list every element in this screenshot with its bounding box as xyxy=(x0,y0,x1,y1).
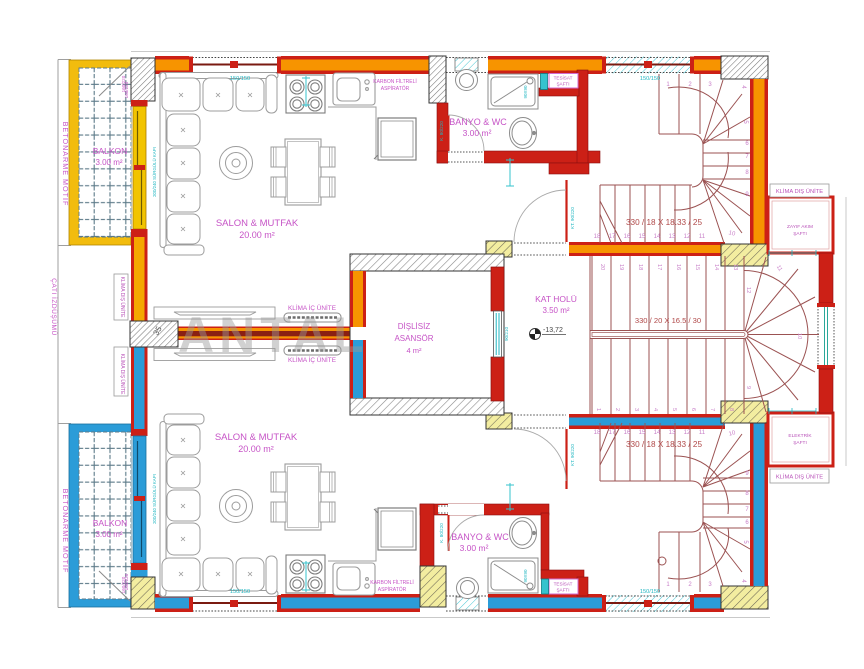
svg-text:TESİSAT: TESİSAT xyxy=(554,75,573,81)
svg-text:ASPİRATÖR: ASPİRATÖR xyxy=(381,85,410,92)
svg-text:19: 19 xyxy=(618,264,624,270)
svg-text:13: 13 xyxy=(669,430,676,436)
svg-text:12: 12 xyxy=(684,234,691,240)
svg-text:150/150: 150/150 xyxy=(640,589,660,595)
svg-text:KLİMA İÇ ÜNİTE: KLİMA İÇ ÜNİTE xyxy=(288,303,336,312)
svg-text:3.00 m²: 3.00 m² xyxy=(463,128,492,138)
svg-text:BANYO & WC: BANYO & WC xyxy=(449,117,507,127)
svg-text:BETONARME MOTİF: BETONARME MOTİF xyxy=(61,122,70,207)
svg-text:200/240 SÜRGÜLÜ KAPI: 200/240 SÜRGÜLÜ KAPI xyxy=(152,147,157,197)
svg-text:12: 12 xyxy=(745,287,751,293)
svg-text:10: 10 xyxy=(796,333,802,339)
svg-text:15: 15 xyxy=(694,264,700,270)
svg-text:6: 6 xyxy=(690,408,696,411)
svg-text:20: 20 xyxy=(599,264,605,270)
svg-text:KAT HOLÜ: KAT HOLÜ xyxy=(535,294,577,304)
svg-text:160/220: 160/220 xyxy=(124,81,129,98)
svg-text:2: 2 xyxy=(614,408,620,411)
svg-text:18: 18 xyxy=(637,264,643,270)
svg-text:3.50 m²: 3.50 m² xyxy=(542,306,569,315)
svg-text:14: 14 xyxy=(713,264,719,270)
svg-text:18: 18 xyxy=(594,234,601,240)
svg-text:90X90: 90X90 xyxy=(523,85,528,99)
svg-text:4: 4 xyxy=(652,408,658,411)
svg-text:ŞAFTI: ŞAFTI xyxy=(793,231,807,237)
svg-text:BALKON: BALKON xyxy=(93,146,128,156)
svg-text:ŞAFTI: ŞAFTI xyxy=(556,82,569,87)
svg-text:ŞAFTI: ŞAFTI xyxy=(793,440,807,446)
svg-text:TESİSAT: TESİSAT xyxy=(554,581,573,587)
svg-text:15: 15 xyxy=(639,430,646,436)
svg-text:20.00 m²: 20.00 m² xyxy=(239,230,275,240)
svg-text:12: 12 xyxy=(684,430,691,436)
svg-text:SALON & MUTFAK: SALON & MUTFAK xyxy=(216,218,299,229)
svg-text:330 / 18 X 18.33 / 25: 330 / 18 X 18.33 / 25 xyxy=(626,218,702,227)
svg-text:5: 5 xyxy=(671,408,677,411)
svg-text:KARBON FİLTRELİ: KARBON FİLTRELİ xyxy=(373,78,417,85)
svg-text:11: 11 xyxy=(699,234,706,240)
svg-text:20.00 m²: 20.00 m² xyxy=(238,444,274,454)
svg-text:3: 3 xyxy=(633,408,639,411)
svg-text:BETONARME MOTİF: BETONARME MOTİF xyxy=(61,489,70,574)
svg-text:200/240 SÜRGÜLÜ KAPI: 200/240 SÜRGÜLÜ KAPI xyxy=(152,474,157,524)
svg-text:BALKON: BALKON xyxy=(93,518,128,528)
svg-text:KLİMA DIŞ ÜNİTE: KLİMA DIŞ ÜNİTE xyxy=(119,277,126,319)
svg-text:K. 80/220: K. 80/220 xyxy=(439,523,444,543)
svg-text:ELEKTRİK: ELEKTRİK xyxy=(788,432,812,439)
svg-text:ANTAL: ANTAL xyxy=(178,307,369,363)
svg-text:1: 1 xyxy=(595,408,601,411)
svg-text:ŞAFTI: ŞAFTI xyxy=(556,588,569,593)
svg-text:KT. 90/220: KT. 90/220 xyxy=(570,444,575,466)
svg-text:90/210: 90/210 xyxy=(504,327,509,341)
svg-text:KLİMA DIŞ ÜNİTE: KLİMA DIŞ ÜNİTE xyxy=(776,188,823,195)
svg-text:K. 80/220: K. 80/220 xyxy=(439,121,444,141)
svg-text:ÇATI İZDÜŞÜMÜ: ÇATI İZDÜŞÜMÜ xyxy=(50,278,59,336)
svg-text:16: 16 xyxy=(675,264,681,270)
svg-text:3.00 m²: 3.00 m² xyxy=(95,158,122,167)
svg-text:14: 14 xyxy=(654,430,661,436)
svg-text:KLİMA DIŞ ÜNİTE: KLİMA DIŞ ÜNİTE xyxy=(776,474,823,481)
svg-text:KARBON FİLTRELİ: KARBON FİLTRELİ xyxy=(370,579,414,586)
svg-text:330 / 18 X 18.33 / 25: 330 / 18 X 18.33 / 25 xyxy=(626,440,702,449)
svg-text:16: 16 xyxy=(624,234,631,240)
svg-text:4 m²: 4 m² xyxy=(407,346,423,355)
svg-text:17: 17 xyxy=(656,264,662,270)
svg-text:-13,72: -13,72 xyxy=(543,327,563,334)
svg-text:160/220: 160/220 xyxy=(124,573,129,590)
svg-text:150/150: 150/150 xyxy=(230,589,250,595)
svg-text:SALON & MUTFAK: SALON & MUTFAK xyxy=(215,432,298,443)
svg-text:KLİMA İÇ ÜNİTE: KLİMA İÇ ÜNİTE xyxy=(288,355,336,364)
svg-text:16: 16 xyxy=(624,430,631,436)
svg-text:BANYO & WC: BANYO & WC xyxy=(451,532,509,542)
svg-text:ASPİRATÖR: ASPİRATÖR xyxy=(378,586,407,593)
svg-text:17: 17 xyxy=(609,430,616,436)
svg-text:13: 13 xyxy=(669,234,676,240)
svg-text:14: 14 xyxy=(654,234,661,240)
svg-text:7: 7 xyxy=(709,408,715,411)
svg-text:3.00 m²: 3.00 m² xyxy=(95,530,122,539)
svg-text:DİŞLİSİZ: DİŞLİSİZ xyxy=(398,322,431,331)
svg-text:150/150: 150/150 xyxy=(230,76,250,82)
svg-text:13: 13 xyxy=(732,264,738,270)
svg-text:9: 9 xyxy=(745,386,751,389)
svg-text:ZAYIF AKIM: ZAYIF AKIM xyxy=(787,224,813,230)
svg-text:ASANSÖR: ASANSÖR xyxy=(394,334,433,343)
svg-text:8: 8 xyxy=(728,408,734,411)
svg-text:90X90: 90X90 xyxy=(523,569,528,583)
svg-text:3.00 m²: 3.00 m² xyxy=(460,543,489,553)
svg-text:15: 15 xyxy=(639,234,646,240)
svg-text:150/150: 150/150 xyxy=(640,76,660,82)
svg-text:18: 18 xyxy=(594,430,601,436)
svg-text:17: 17 xyxy=(609,234,616,240)
svg-text:KT. 90/220: KT. 90/220 xyxy=(570,207,575,229)
svg-text:KLİMA DIŞ ÜNİTE: KLİMA DIŞ ÜNİTE xyxy=(119,354,126,396)
svg-text:11: 11 xyxy=(699,430,706,436)
svg-text:330 / 20 X 16.5 / 30: 330 / 20 X 16.5 / 30 xyxy=(635,316,701,325)
